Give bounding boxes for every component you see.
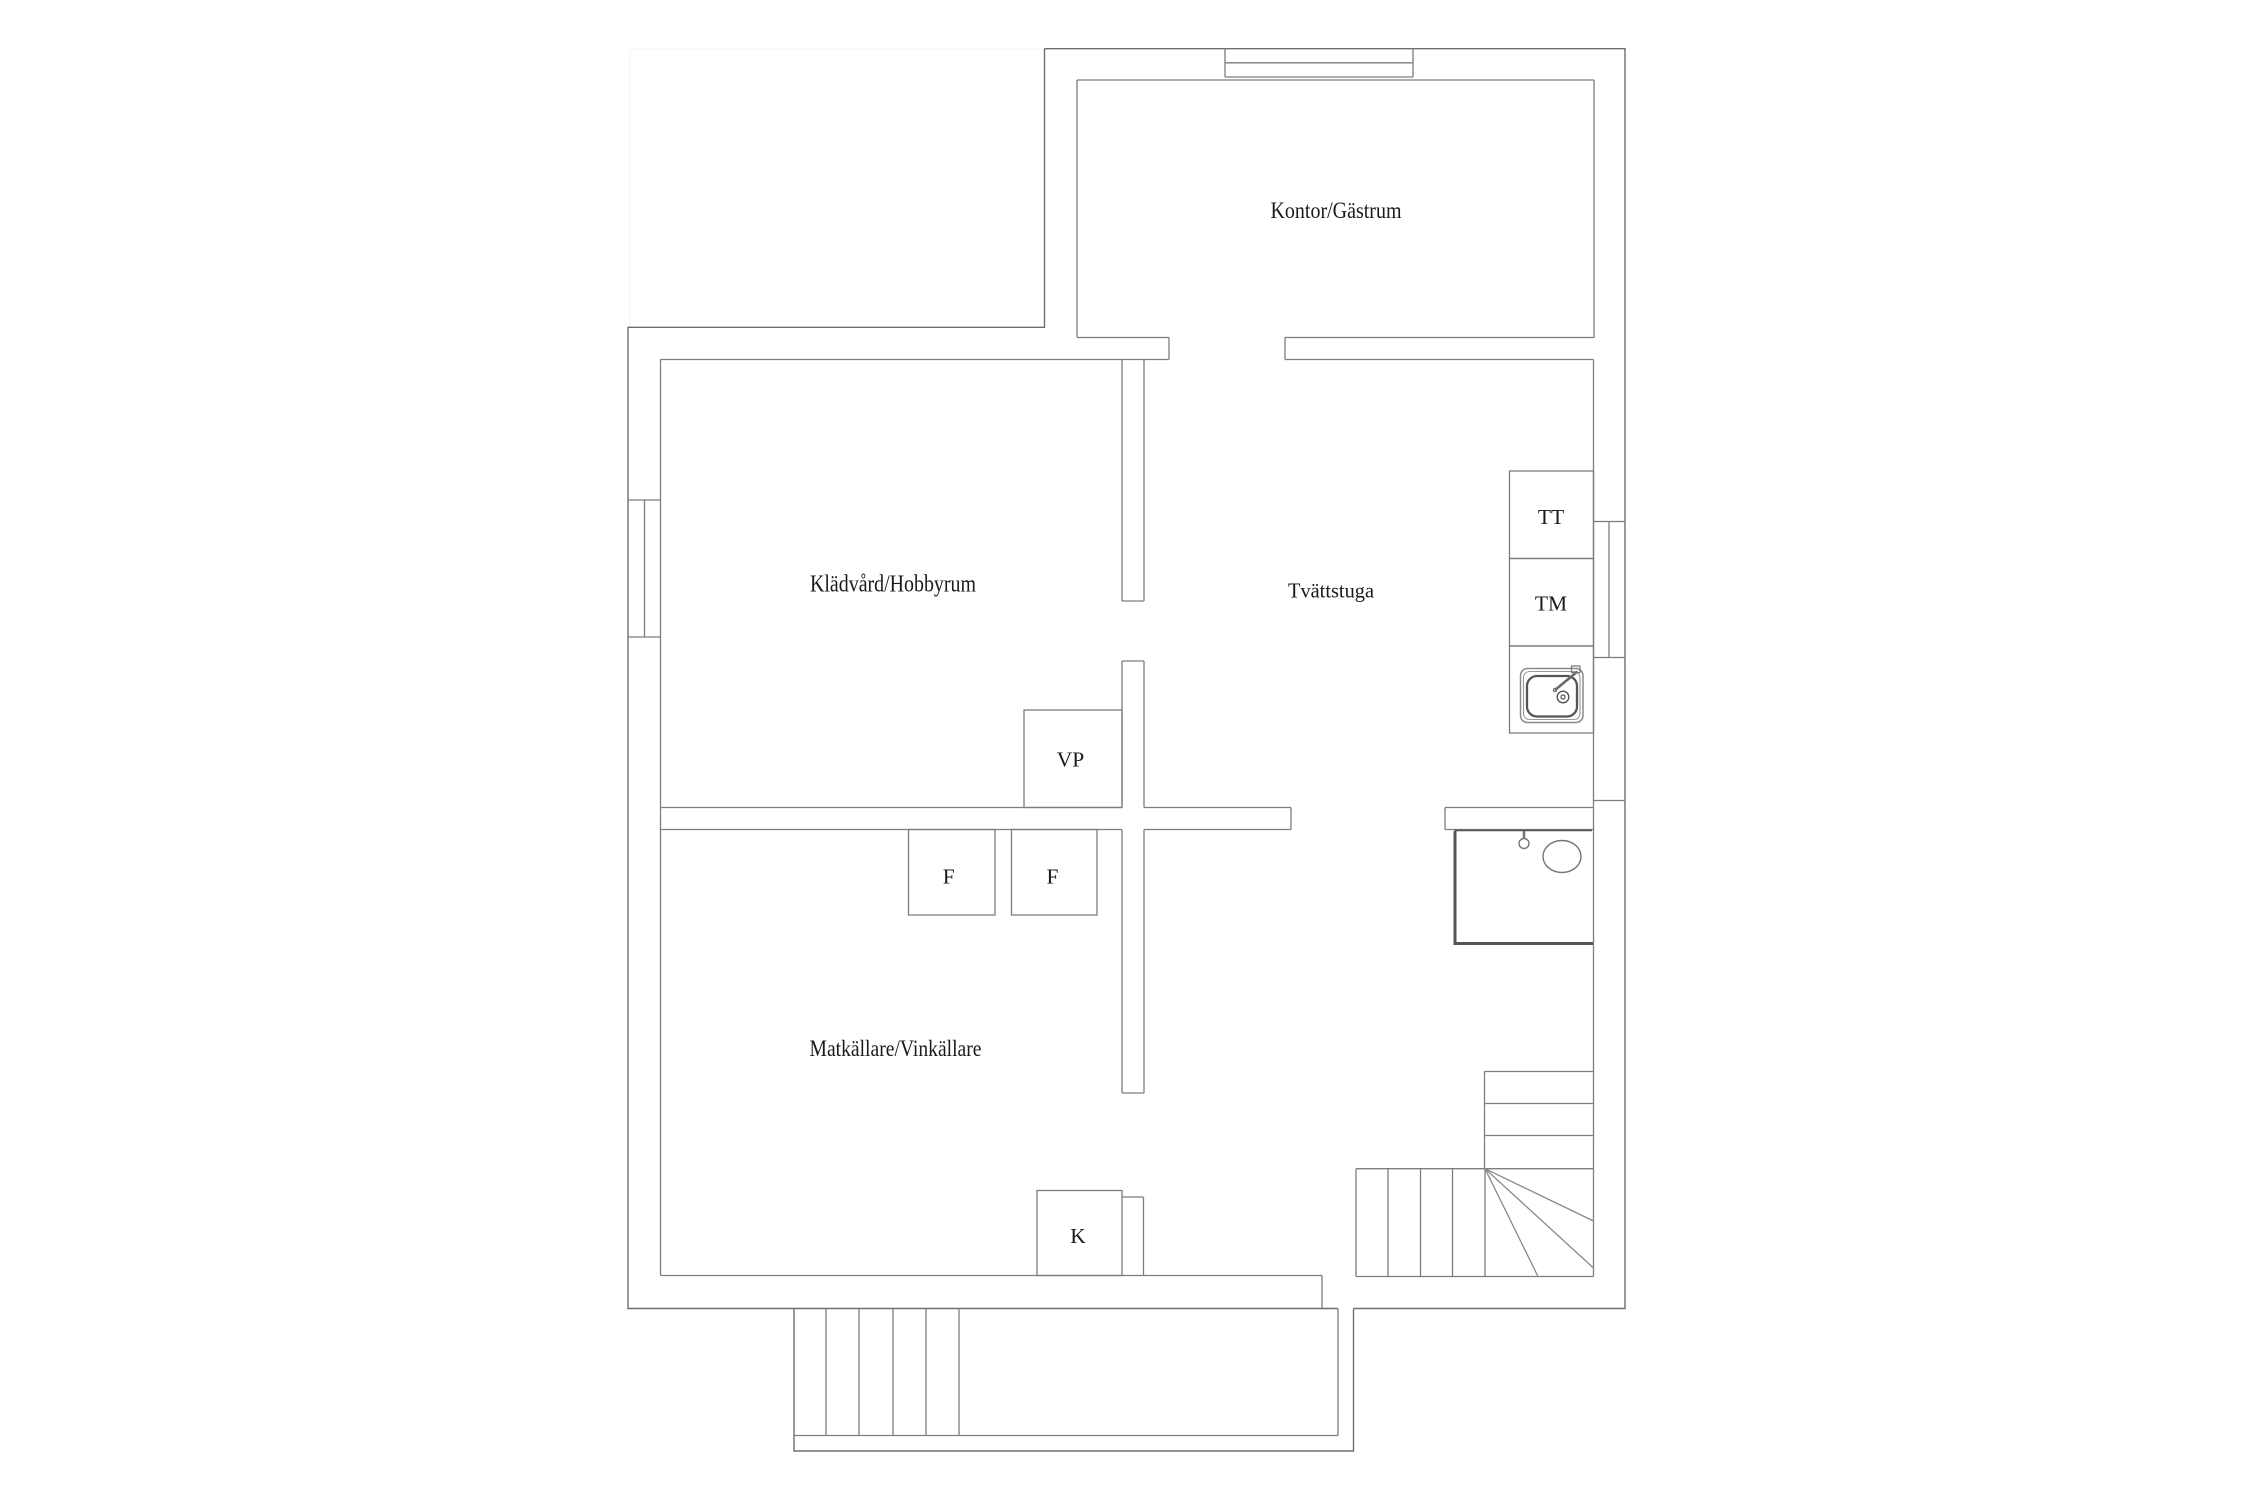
svg-text:VP: VP bbox=[1057, 748, 1085, 772]
svg-text:TT: TT bbox=[1538, 505, 1564, 529]
svg-text:Klädvård/Hobbyrum: Klädvård/Hobbyrum bbox=[810, 572, 976, 598]
svg-text:F: F bbox=[1047, 865, 1059, 889]
svg-text:Matkällare/Vinkällare: Matkällare/Vinkällare bbox=[810, 1036, 982, 1061]
svg-text:Tvättstuga: Tvättstuga bbox=[1288, 579, 1375, 603]
svg-text:Kontor/Gästrum: Kontor/Gästrum bbox=[1271, 198, 1402, 223]
svg-text:TM: TM bbox=[1535, 592, 1567, 616]
svg-text:F: F bbox=[943, 865, 955, 889]
svg-text:K: K bbox=[1070, 1224, 1086, 1248]
